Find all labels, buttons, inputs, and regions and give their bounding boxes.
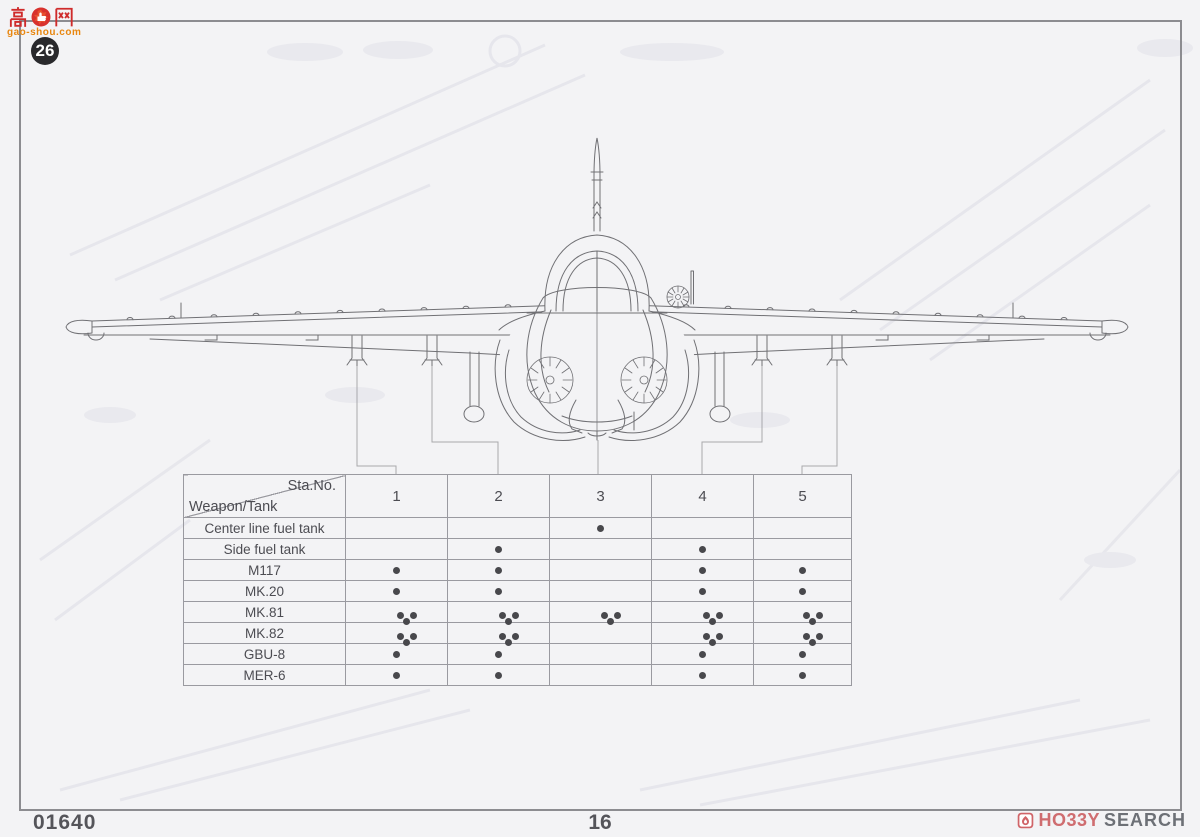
station-cell [754, 581, 852, 602]
station-cell [448, 623, 550, 644]
instruction-sheet-page: gao-shou.com 26 Sta.No.Weapon/Tank12345 … [0, 0, 1200, 837]
station-column-header: 1 [346, 475, 448, 518]
weapon-label: MK.82 [184, 623, 346, 644]
station-cell [448, 518, 550, 539]
header-row: Sta.No.Weapon/Tank12345 [184, 475, 852, 518]
station-cell [346, 518, 448, 539]
station-cell [550, 539, 652, 560]
gao-character-glyph [7, 6, 29, 28]
station-cell [346, 644, 448, 665]
table-row: MK.20 [184, 581, 852, 602]
corner-cell: Sta.No.Weapon/Tank [184, 475, 346, 518]
station-column-header: 5 [754, 475, 852, 518]
table-row: MER-6 [184, 665, 852, 686]
thumbs-up-icon [30, 6, 52, 28]
station-dot [699, 546, 706, 553]
weapon-label: GBU-8 [184, 644, 346, 665]
watermark-domain: gao-shou.com [7, 27, 99, 38]
station-cell [754, 518, 852, 539]
station-cell [550, 560, 652, 581]
station-dot [597, 525, 604, 532]
station-cell [652, 644, 754, 665]
station-cell [448, 581, 550, 602]
weapon-label: MER-6 [184, 665, 346, 686]
station-cell [652, 581, 754, 602]
station-dot [699, 588, 706, 595]
station-dot [495, 651, 502, 658]
station-cell [346, 560, 448, 581]
weapon-label: MK.81 [184, 602, 346, 623]
hobbysearch-logo: HO33Y SEARCH [1017, 810, 1186, 831]
table-row: Center line fuel tank [184, 518, 852, 539]
station-cell [346, 665, 448, 686]
station-cell [754, 539, 852, 560]
station-dot [393, 672, 400, 679]
station-cell [550, 644, 652, 665]
station-cell [754, 602, 852, 623]
station-cell [652, 602, 754, 623]
station-cell [652, 665, 754, 686]
station-dot [393, 588, 400, 595]
station-cell [550, 623, 652, 644]
station-cell [448, 539, 550, 560]
station-cell [448, 644, 550, 665]
station-cell [550, 602, 652, 623]
station-cell [754, 665, 852, 686]
station-dot [699, 672, 706, 679]
page-border-frame [19, 20, 1182, 811]
hobbysearch-search-text: SEARCH [1104, 810, 1186, 831]
step-number-badge: 26 [31, 37, 59, 65]
station-dot [699, 567, 706, 574]
station-cell [652, 539, 754, 560]
station-dot [799, 588, 806, 595]
station-cell [448, 602, 550, 623]
station-cell [550, 665, 652, 686]
gaoshou-watermark: gao-shou.com [7, 6, 99, 38]
table-header: Sta.No.Weapon/Tank12345 [184, 475, 852, 518]
station-cell [652, 623, 754, 644]
table-row: GBU-8 [184, 644, 852, 665]
station-cell [448, 560, 550, 581]
hobbysearch-icon [1017, 812, 1034, 829]
weapon-label: MK.20 [184, 581, 346, 602]
hobbysearch-hobby-text: HO33Y [1038, 810, 1100, 831]
station-cell [346, 539, 448, 560]
station-cell [346, 623, 448, 644]
corner-top-label: Sta.No. [288, 478, 336, 494]
station-cell [448, 665, 550, 686]
weapon-label: M117 [184, 560, 346, 581]
station-cell [346, 581, 448, 602]
station-dot [495, 567, 502, 574]
wang-character-glyph [53, 6, 75, 28]
station-column-header: 4 [652, 475, 754, 518]
station-cell [754, 644, 852, 665]
station-cell [550, 581, 652, 602]
station-cell [652, 518, 754, 539]
station-dot [393, 567, 400, 574]
station-dot [393, 651, 400, 658]
station-dot [495, 546, 502, 553]
station-cell [550, 518, 652, 539]
station-cell [346, 602, 448, 623]
station-column-header: 3 [550, 475, 652, 518]
station-dot [799, 567, 806, 574]
station-dot [799, 672, 806, 679]
table-body: Center line fuel tankSide fuel tankM117M… [184, 518, 852, 686]
station-column-header: 2 [448, 475, 550, 518]
station-cell [754, 560, 852, 581]
table-row: Side fuel tank [184, 539, 852, 560]
weapon-label: Side fuel tank [184, 539, 346, 560]
table-row: M117 [184, 560, 852, 581]
station-dot [495, 588, 502, 595]
station-dot [799, 651, 806, 658]
corner-bottom-label: Weapon/Tank [189, 499, 277, 515]
station-cell [652, 560, 754, 581]
station-dot [699, 651, 706, 658]
table-row: MK.82 [184, 623, 852, 644]
weapon-label: Center line fuel tank [184, 518, 346, 539]
weapon-station-table: Sta.No.Weapon/Tank12345 Center line fuel… [183, 474, 852, 686]
table-row: MK.81 [184, 602, 852, 623]
station-dot [495, 672, 502, 679]
station-cell [754, 623, 852, 644]
